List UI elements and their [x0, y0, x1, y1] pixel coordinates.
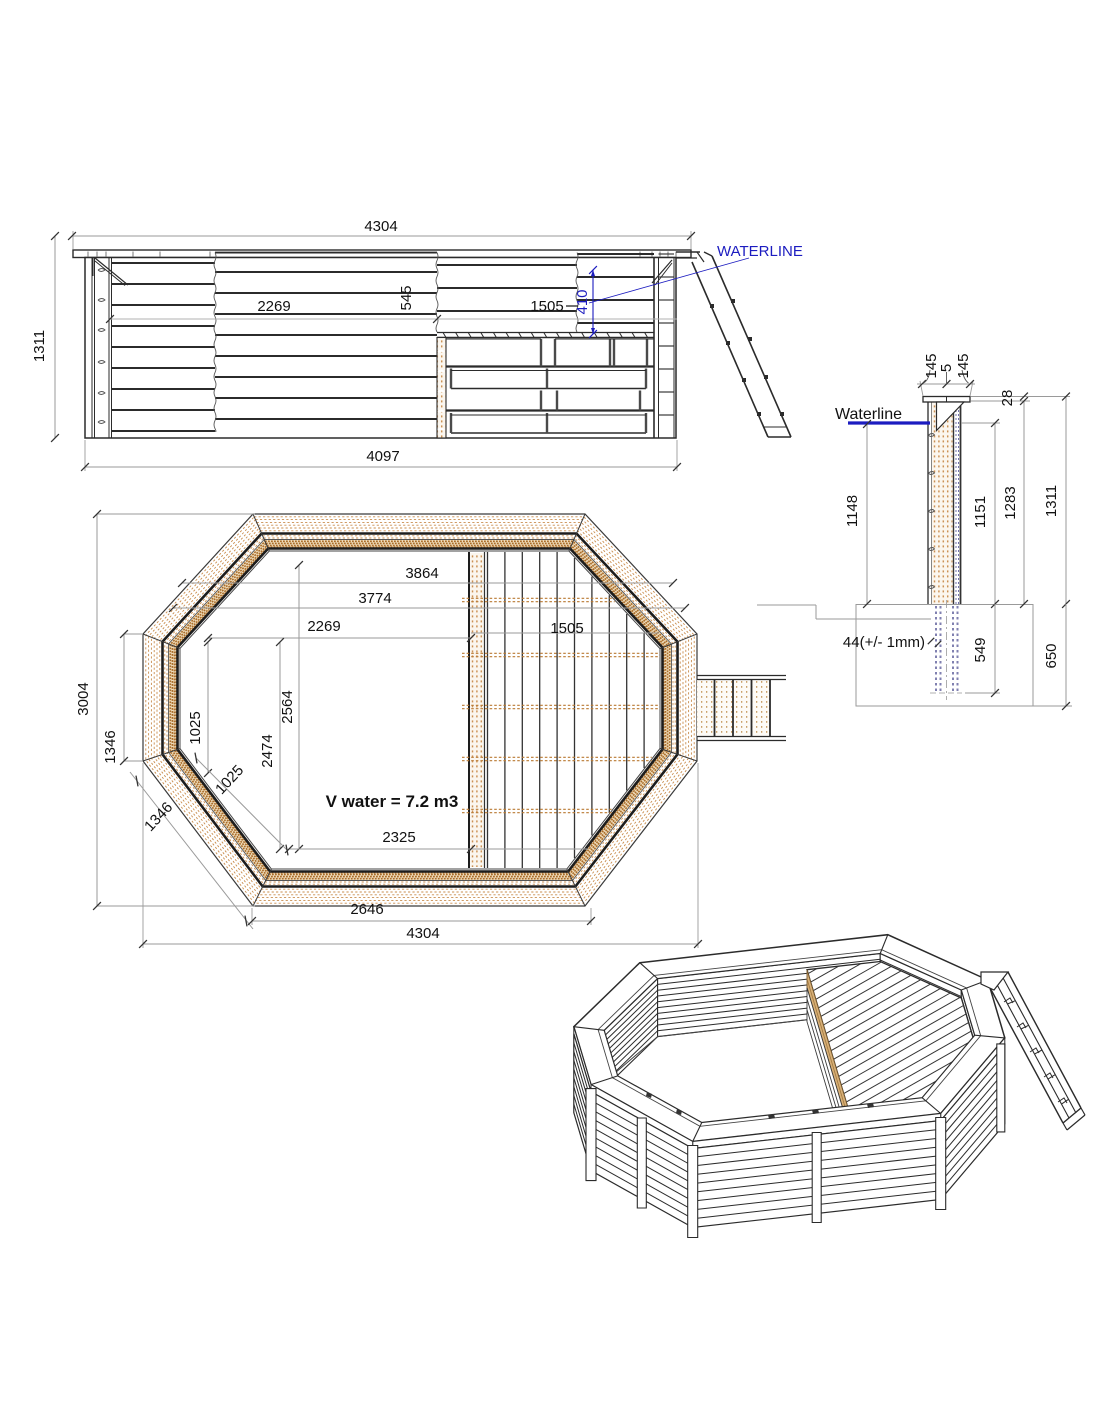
- svg-text:4304: 4304: [364, 218, 397, 235]
- svg-text:549: 549: [972, 637, 989, 662]
- svg-text:1346: 1346: [102, 730, 119, 763]
- svg-text:1505: 1505: [530, 298, 563, 315]
- svg-text:3864: 3864: [405, 565, 438, 582]
- svg-text:650: 650: [1043, 643, 1060, 668]
- svg-text:145: 145: [955, 353, 972, 378]
- svg-text:WATERLINE: WATERLINE: [717, 243, 803, 260]
- svg-text:4304: 4304: [406, 925, 439, 942]
- svg-text:2646: 2646: [350, 901, 383, 918]
- svg-text:2474: 2474: [259, 734, 276, 767]
- svg-text:1311: 1311: [1043, 485, 1060, 517]
- svg-text:44(+/- 1mm): 44(+/- 1mm): [843, 634, 925, 651]
- svg-text:1283: 1283: [1002, 486, 1019, 519]
- svg-text:28: 28: [999, 390, 1016, 407]
- svg-text:3004: 3004: [75, 682, 92, 715]
- svg-text:4097: 4097: [366, 448, 399, 465]
- svg-text:410: 410: [574, 289, 591, 314]
- svg-text:2325: 2325: [382, 829, 415, 846]
- svg-text:Waterline: Waterline: [835, 406, 902, 423]
- svg-text:1151: 1151: [972, 496, 989, 528]
- svg-text:2269: 2269: [257, 298, 290, 315]
- svg-text:1025: 1025: [187, 711, 204, 744]
- svg-text:545: 545: [398, 285, 415, 310]
- svg-text:5: 5: [938, 364, 955, 372]
- svg-text:1505: 1505: [550, 620, 583, 637]
- svg-text:1311: 1311: [31, 330, 48, 362]
- svg-text:V water = 7.2 m3: V water = 7.2 m3: [326, 792, 459, 811]
- svg-text:2564: 2564: [279, 690, 296, 723]
- svg-text:3774: 3774: [358, 590, 391, 607]
- svg-text:1148: 1148: [844, 495, 861, 527]
- svg-text:2269: 2269: [307, 618, 340, 635]
